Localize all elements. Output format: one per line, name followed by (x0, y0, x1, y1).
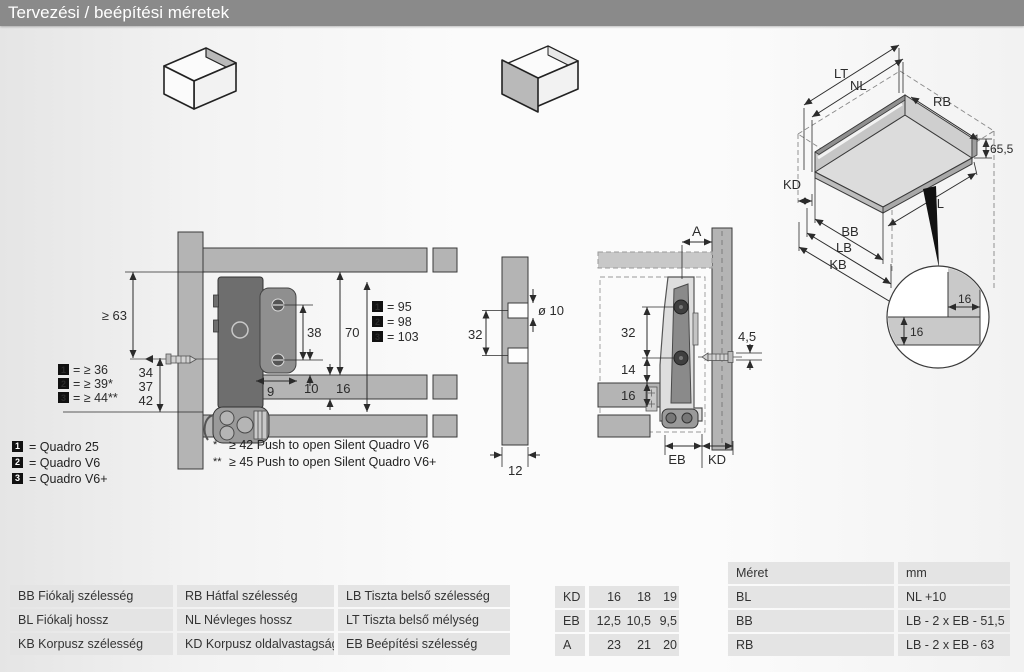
svg-text:= ≥ 44**: = ≥ 44** (73, 391, 118, 405)
table-cell: RB (728, 634, 894, 656)
dim-min63: ≥ 63 (102, 308, 127, 323)
quadro-legend: 1 = Quadro 25 2 = Quadro V6 3 = Quadro V… (12, 440, 108, 488)
table-cell: LT Tiszta belső mélység (338, 609, 510, 631)
table-cell: EB Beépítési szélesség (338, 633, 510, 655)
dim-diameter: ø 10 (538, 303, 564, 318)
top-rail (598, 252, 712, 268)
bottom-rail (598, 415, 650, 437)
page-title-bar: Tervezési / beépítési méretek (0, 0, 1024, 26)
svg-text:= ≥ 39*: = ≥ 39* (73, 377, 113, 391)
dim-34: 34 (139, 365, 153, 380)
dim-BB: BB (841, 224, 858, 239)
legend-badge-2: 2 (12, 457, 23, 468)
svg-text:2: 2 (61, 379, 66, 389)
table-cell: LB - 2 x EB - 51,5 (898, 610, 1010, 632)
detail-dim-16v: 16 (910, 325, 924, 339)
page-title: Tervezési / beépítési méretek (0, 0, 1024, 25)
legend-badge-3: 3 (12, 473, 23, 484)
dim-16: 16 (621, 388, 635, 403)
row-label: EB (555, 610, 585, 632)
system-height-legend: 1 = 95 2 = 98 3 = 103 (372, 300, 419, 344)
values-table: KD 16 18 19 EB 12,5 10,5 9,5 A 23 21 20 (555, 586, 679, 656)
dim-RB: RB (933, 94, 951, 109)
table-cell: NL Névleges hossz (177, 609, 334, 631)
dim-32: 32 (621, 325, 635, 340)
drawer-open-icon (150, 38, 265, 120)
svg-text:2: 2 (375, 317, 380, 327)
row-label: A (555, 634, 585, 656)
isometric-dimensions-drawing: LT NL RB 65,5 KD BB LB KB BL 16 (778, 36, 1024, 376)
hole-bottom (508, 348, 528, 363)
dim-LB: LB (836, 240, 852, 255)
svg-text:1: 1 (375, 302, 380, 312)
dim-EB: EB (668, 452, 685, 467)
drawer-side-profile (646, 277, 702, 428)
dim-37: 37 (139, 379, 153, 394)
dimension-lines (642, 242, 762, 468)
formula-table: Méret mm BL NL +10 BB LB - 2 x EB - 51,5… (728, 562, 1010, 656)
legend-item: 1 = Quadro 25 (12, 440, 108, 453)
table-cell: NL +10 (898, 586, 1010, 608)
table-cell: KB Korpusz szélesség (10, 633, 173, 655)
legend-item: 2 = Quadro V6 (12, 456, 108, 469)
dim-LT: LT (834, 66, 848, 81)
dim-KD: KD (708, 452, 726, 467)
dim-12: 12 (508, 463, 522, 478)
table-cell: LB Tiszta belső szélesség (338, 585, 510, 607)
svg-text:1: 1 (61, 365, 66, 375)
min-depth-legend: 1 = ≥ 36 2 = ≥ 39* 3 = ≥ 44** (58, 363, 118, 405)
header-cell: mm (898, 562, 1010, 584)
dim-38: 38 (307, 325, 321, 340)
dim-32: 32 (468, 327, 482, 342)
table-cell: RB Hátfal szélesség (177, 585, 334, 607)
hole-pattern-drawing: ø 10 32 12 (465, 245, 585, 490)
table-cell: LB - 2 x EB - 63 (898, 634, 1010, 656)
dim-KB: KB (829, 257, 846, 272)
header-cell: Méret (728, 562, 894, 584)
detail-dim-16h: 16 (958, 292, 972, 306)
table-cell: BL (728, 586, 894, 608)
dim-42: 42 (139, 393, 153, 408)
dim-NL: NL (850, 78, 867, 93)
row-values: 16 18 19 (589, 586, 679, 608)
definitions-table: BB Fiókalj szélesség RB Hátfal szélesség… (10, 585, 510, 655)
row-values: 23 21 20 (589, 634, 679, 656)
dim-A: A (692, 223, 702, 239)
dim-16: 16 (336, 381, 350, 396)
table-cell: BB Fiókalj szélesség (10, 585, 173, 607)
dim-45: 4,5 (738, 329, 756, 344)
dim-9: 9 (267, 384, 274, 399)
legend-item: 3 = Quadro V6+ (12, 472, 108, 485)
dim-KD: KD (783, 177, 801, 192)
dim-10: 10 (304, 381, 318, 396)
detail-circle: 16 16 (884, 266, 989, 368)
svg-text:= 103: = 103 (387, 330, 419, 344)
table-cell: KD Korpusz oldalvastagságok (177, 633, 334, 655)
cross-section-side-drawing: A 32 14 16 4,5 EB KD (590, 215, 775, 470)
svg-text:= 95: = 95 (387, 300, 412, 314)
legend-badge-1: 1 (12, 441, 23, 452)
drawer-front-icon (492, 36, 607, 118)
footnote: * ≥ 42 Push to open Silent Quadro V6 (213, 438, 436, 452)
footnote: ** ≥ 45 Push to open Silent Quadro V6+ (213, 455, 436, 469)
dim-70: 70 (345, 325, 359, 340)
row-label: KD (555, 586, 585, 608)
footnotes: * ≥ 42 Push to open Silent Quadro V6 ** … (213, 438, 436, 472)
mounting-screw-icon (130, 354, 218, 364)
svg-text:= 98: = 98 (387, 315, 412, 329)
dim-14: 14 (621, 362, 635, 377)
table-cell: BB (728, 610, 894, 632)
svg-text:3: 3 (61, 393, 66, 403)
catalog-page: Tervezési / beépítési méretek (0, 0, 1024, 672)
dim-655: 65,5 (990, 142, 1014, 156)
svg-text:= ≥ 36: = ≥ 36 (73, 363, 108, 377)
row-values: 12,5 10,5 9,5 (589, 610, 679, 632)
hole-top (508, 303, 528, 318)
table-cell: BL Fiókalj hossz (10, 609, 173, 631)
svg-text:3: 3 (375, 332, 380, 342)
